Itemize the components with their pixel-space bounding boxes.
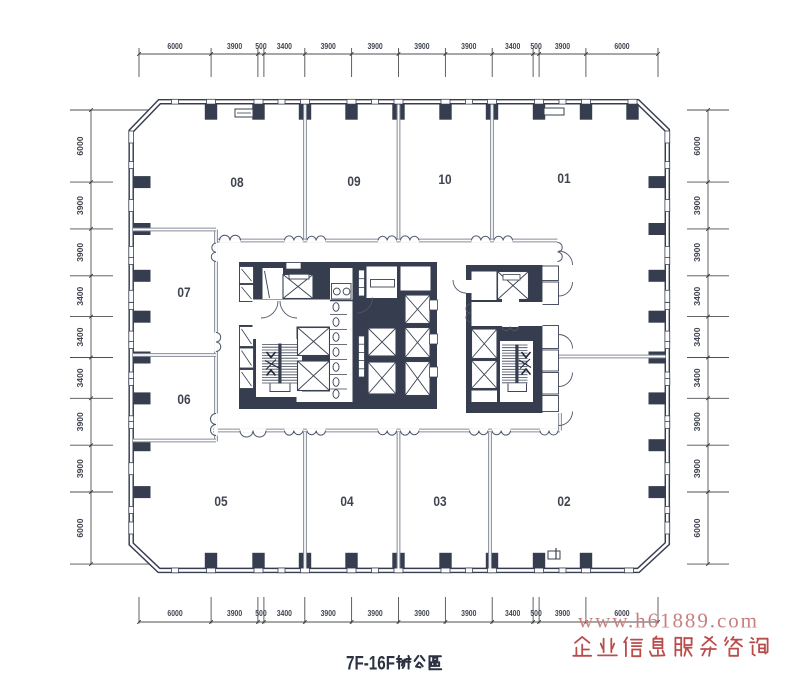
svg-text:3900: 3900 — [367, 41, 382, 51]
svg-text:09: 09 — [347, 173, 360, 189]
svg-text:3900: 3900 — [75, 196, 85, 215]
svg-text:6000: 6000 — [692, 136, 702, 155]
svg-text:04: 04 — [340, 493, 354, 509]
svg-text:3400: 3400 — [692, 368, 702, 387]
svg-text:500: 500 — [530, 608, 541, 618]
svg-text:500: 500 — [255, 41, 266, 51]
svg-text:6000: 6000 — [614, 41, 629, 51]
svg-text:3400: 3400 — [692, 286, 702, 305]
svg-text:08: 08 — [230, 174, 243, 190]
svg-text:3900: 3900 — [414, 41, 429, 51]
svg-text:500: 500 — [530, 41, 541, 51]
svg-text:01: 01 — [557, 170, 570, 186]
svg-text:3400: 3400 — [75, 368, 85, 387]
svg-text:3400: 3400 — [505, 608, 520, 618]
svg-text:3400: 3400 — [505, 41, 520, 51]
svg-text:3900: 3900 — [414, 608, 429, 618]
svg-text:3900: 3900 — [461, 41, 476, 51]
svg-text:05: 05 — [214, 493, 227, 509]
svg-text:6000: 6000 — [167, 608, 182, 618]
svg-text:6000: 6000 — [692, 518, 702, 537]
svg-text:3400: 3400 — [277, 41, 292, 51]
svg-text:02: 02 — [557, 493, 570, 509]
svg-text:6000: 6000 — [75, 518, 85, 537]
svg-text:3900: 3900 — [321, 41, 336, 51]
svg-text:www.h61889.com: www.h61889.com — [578, 609, 757, 633]
svg-text:06: 06 — [177, 391, 190, 407]
svg-text:3900: 3900 — [692, 196, 702, 215]
svg-text:3900: 3900 — [692, 459, 702, 478]
svg-text:3900: 3900 — [75, 412, 85, 431]
svg-text:3400: 3400 — [277, 608, 292, 618]
svg-text:3900: 3900 — [321, 608, 336, 618]
svg-text:3900: 3900 — [461, 608, 476, 618]
svg-text:3900: 3900 — [75, 459, 85, 478]
svg-text:3900: 3900 — [555, 608, 570, 618]
svg-text:7F-16F: 7F-16F — [346, 652, 395, 674]
svg-text:3400: 3400 — [692, 327, 702, 346]
svg-text:3400: 3400 — [75, 327, 85, 346]
svg-text:3900: 3900 — [555, 41, 570, 51]
svg-text:500: 500 — [255, 608, 266, 618]
svg-text:3400: 3400 — [75, 286, 85, 305]
svg-text:3900: 3900 — [227, 41, 242, 51]
svg-text:3900: 3900 — [367, 608, 382, 618]
svg-text:3900: 3900 — [227, 608, 242, 618]
svg-text:3900: 3900 — [692, 412, 702, 431]
svg-text:6000: 6000 — [167, 41, 182, 51]
svg-text:6000: 6000 — [75, 136, 85, 155]
svg-text:07: 07 — [177, 284, 190, 300]
svg-text:3900: 3900 — [75, 243, 85, 262]
svg-text:03: 03 — [433, 493, 446, 509]
svg-text:3900: 3900 — [692, 243, 702, 262]
svg-text:10: 10 — [438, 171, 451, 187]
